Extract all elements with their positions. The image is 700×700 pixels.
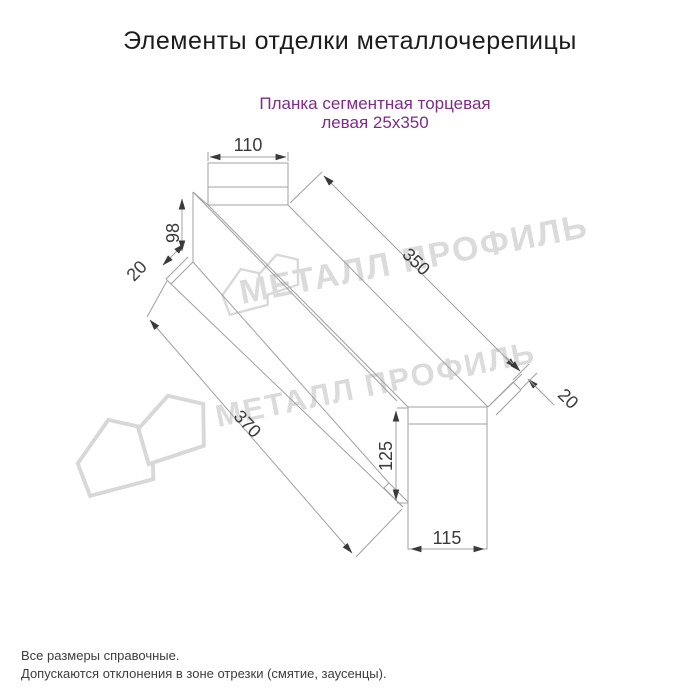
watermark-text: МЕТАЛЛ ПРОФИЛЬ: [212, 335, 538, 434]
dim-20-left-label: 20: [123, 257, 151, 285]
watermark-lower: МЕТАЛЛ ПРОФИЛЬ: [70, 335, 539, 497]
technical-drawing: МЕТАЛЛ ПРОФИЛЬ МЕТАЛЛ ПРОФИЛЬ: [0, 0, 700, 700]
dim-98-label: 98: [163, 223, 183, 243]
metal-profil-logo-icon: [70, 391, 214, 497]
catalog-page: Элементы отделки металлочерепицы Планка …: [0, 0, 700, 700]
footer-note-1: Все размеры справочные.: [21, 648, 179, 663]
dim-110-label: 110: [234, 135, 263, 155]
dim-125: [396, 408, 408, 503]
dim-20-left: [163, 244, 184, 265]
dim-115-label: 115: [433, 528, 462, 548]
footer-note-2: Допускаются отклонения в зоне отрезки (с…: [21, 666, 387, 681]
dim-125-label: 125: [376, 441, 396, 471]
dim-20-right-label: 20: [554, 385, 582, 413]
